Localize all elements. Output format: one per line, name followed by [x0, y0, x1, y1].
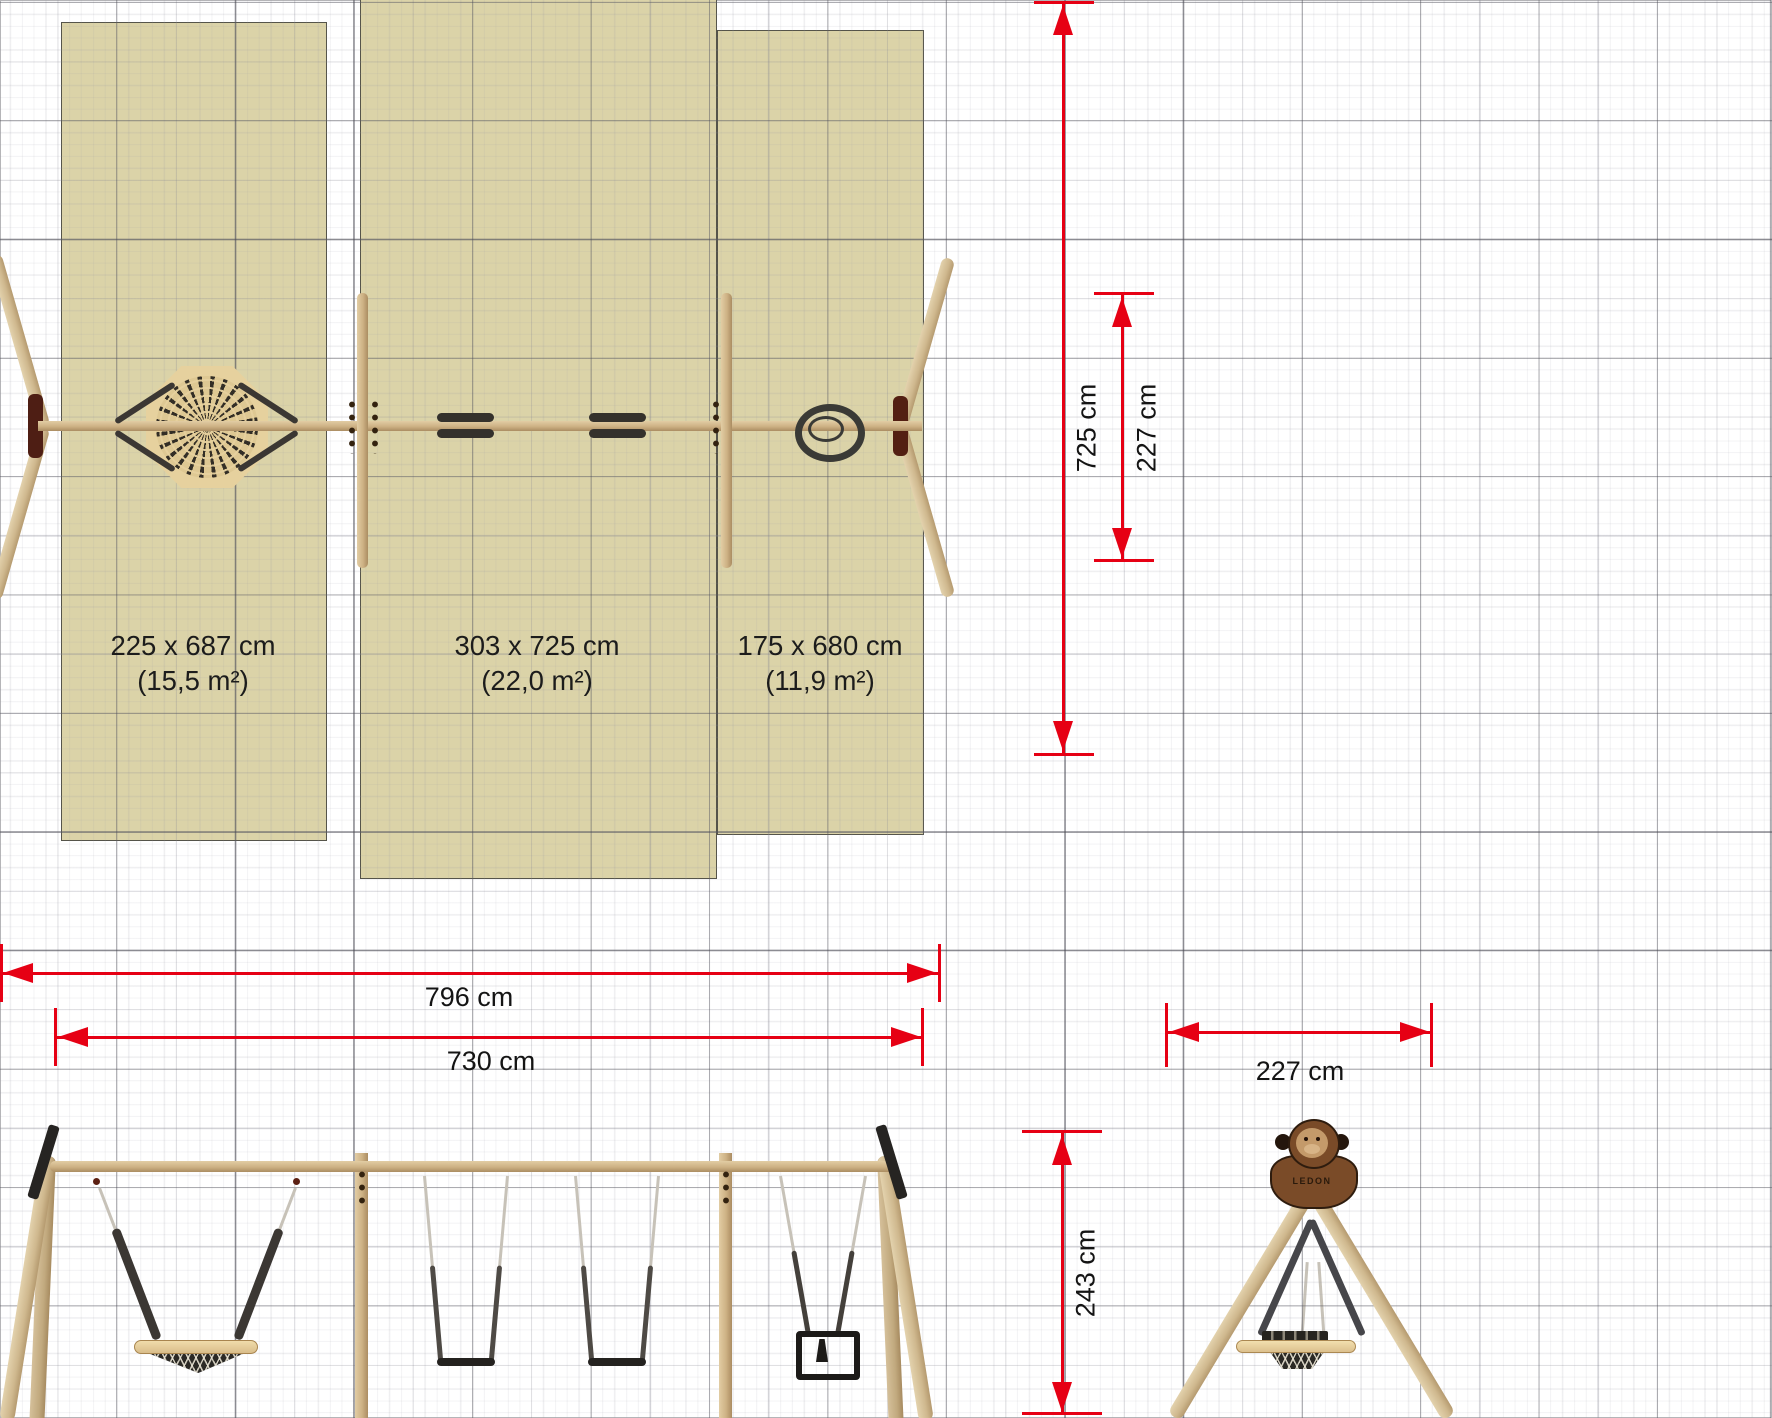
swing-seat-plan	[437, 429, 494, 438]
dim-796-line	[1, 972, 939, 975]
nest-shackle	[93, 1178, 100, 1185]
dim-227h-arrow-left	[1169, 1022, 1199, 1042]
swing-seat-plan	[589, 413, 646, 422]
elev-main-beam	[50, 1161, 898, 1172]
safety-zone-middle	[360, 0, 717, 879]
swing1-seat	[437, 1358, 495, 1366]
nest-basket-rim	[134, 1340, 258, 1354]
tripod-basket-rim	[1236, 1340, 1356, 1353]
monkey-eye	[1316, 1137, 1320, 1141]
dim-227v-cap-top	[1094, 292, 1154, 295]
dim-796-arrow-left	[3, 963, 33, 983]
dim-243-arrow-top	[1052, 1135, 1072, 1165]
dim-227v-cap-bottom	[1094, 559, 1154, 562]
zone-label-left: 225 x 687 cm (15,5 m²)	[110, 628, 275, 698]
dim-730-cap-right	[921, 1008, 924, 1066]
plan-post-bolts	[348, 398, 356, 454]
dim-227h-label: 227 cm	[1256, 1056, 1345, 1087]
plan-post-bolts	[712, 398, 720, 454]
elev-post-bolts	[721, 1168, 731, 1208]
dim-725-arrow-bottom	[1053, 721, 1073, 751]
baby-hanger-left	[777, 1175, 812, 1334]
zone-area-text: (11,9 m²)	[737, 663, 902, 698]
swing2-hanger-left	[572, 1176, 595, 1364]
plan-middle-post	[357, 293, 368, 568]
tripod-chain	[1317, 1262, 1325, 1340]
dim-243-label: 243 cm	[1071, 1229, 1102, 1318]
zone-label-right: 175 x 680 cm (11,9 m²)	[737, 628, 902, 698]
zone-size-text: 225 x 687 cm	[110, 628, 275, 663]
dim-243-arrow-bottom	[1052, 1382, 1072, 1412]
dim-725-line	[1062, 2, 1065, 755]
zone-size-text: 303 x 725 cm	[454, 628, 619, 663]
baby-seat-plan-inner	[808, 416, 844, 442]
tripod-leg-left	[1168, 1184, 1318, 1418]
swing-seat-plan	[437, 413, 494, 422]
plan-post-bolts	[371, 398, 379, 454]
dim-243-line	[1061, 1132, 1064, 1415]
monkey-logo: LEDON	[1270, 1119, 1354, 1205]
elev-post-bolts	[357, 1168, 367, 1208]
baby-hanger-right	[834, 1175, 869, 1334]
zone-area-text: (22,0 m²)	[454, 663, 619, 698]
dim-796-cap-right	[938, 944, 941, 1002]
tripod-chain	[1300, 1262, 1308, 1340]
dim-227v-label: 227 cm	[1132, 384, 1163, 473]
dim-725-arrow-top	[1053, 5, 1073, 35]
swing-seat-plan	[589, 429, 646, 438]
zone-area-text: (15,5 m²)	[110, 663, 275, 698]
dim-730-line	[56, 1036, 923, 1039]
baby-seat-frame	[796, 1331, 860, 1380]
nest-hanger-right	[233, 1186, 299, 1340]
dim-730-label: 730 cm	[447, 1046, 536, 1077]
dim-227h-arrow-right	[1400, 1022, 1430, 1042]
dim-730-arrow-left	[58, 1027, 88, 1047]
dimension-drawing-sheet: 225 x 687 cm (15,5 m²) 303 x 725 cm (22,…	[0, 0, 1772, 1418]
dim-725-label: 725 cm	[1072, 384, 1103, 473]
dim-227h-line	[1167, 1031, 1431, 1034]
zone-size-text: 175 x 680 cm	[737, 628, 902, 663]
dim-725-cap-bottom	[1034, 753, 1094, 756]
nest-shackle	[293, 1178, 300, 1185]
dim-227v-line	[1121, 294, 1124, 561]
swing1-hanger-right	[488, 1176, 511, 1364]
swing2-hanger-right	[639, 1176, 662, 1364]
nest-hanger-left	[95, 1186, 161, 1340]
monkey-eye	[1304, 1137, 1308, 1141]
plan-middle-post	[721, 293, 732, 568]
dim-227v-arrow-bottom	[1112, 528, 1132, 558]
swing2-seat	[588, 1358, 646, 1366]
dim-730-arrow-right	[891, 1027, 921, 1047]
zone-label-middle: 303 x 725 cm (22,0 m²)	[454, 628, 619, 698]
dim-227v-arrow-top	[1112, 297, 1132, 327]
dim-227h-cap-left	[1165, 1003, 1168, 1067]
logo-text: LEDON	[1270, 1176, 1354, 1186]
monkey-muzzle	[1304, 1144, 1320, 1154]
dim-243-cap-bottom	[1022, 1412, 1102, 1415]
baby-seat-divider	[816, 1339, 828, 1362]
dim-227h-cap-right	[1430, 1003, 1433, 1067]
dim-796-arrow-right	[907, 963, 937, 983]
swing1-hanger-left	[421, 1176, 444, 1364]
dim-796-label: 796 cm	[425, 982, 514, 1013]
tripod-leg-right	[1305, 1184, 1455, 1418]
